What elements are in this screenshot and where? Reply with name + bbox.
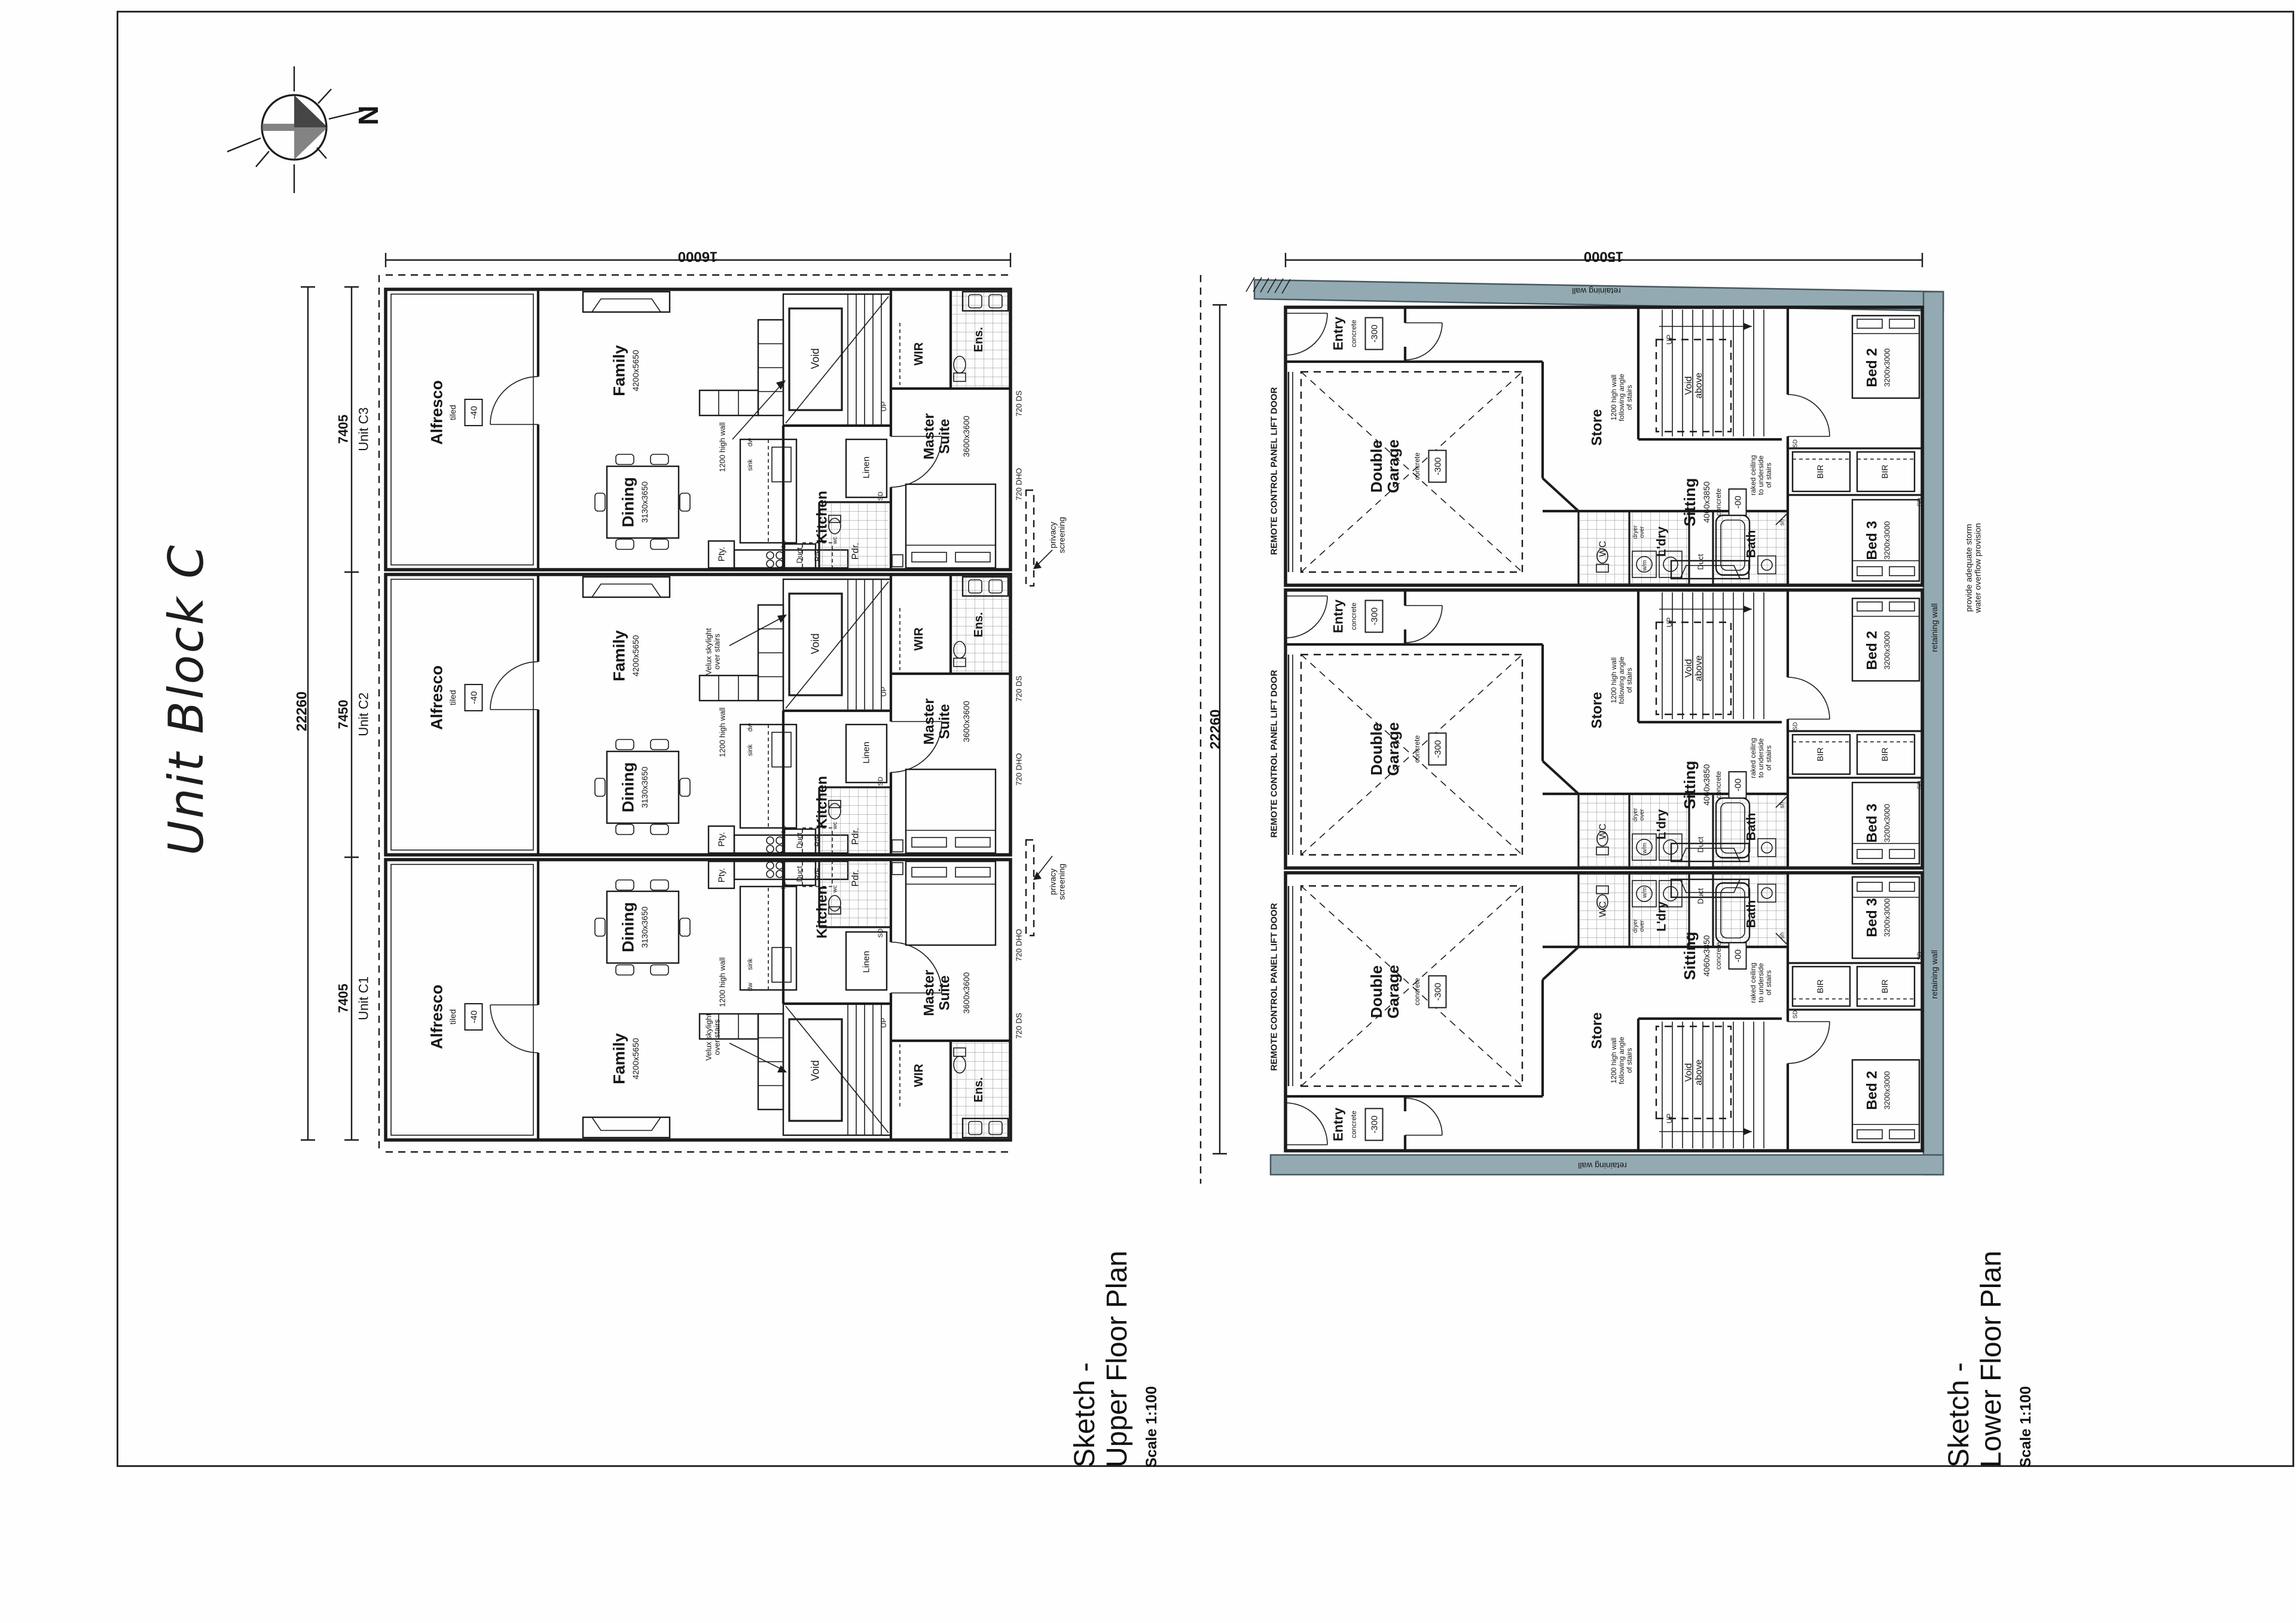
svg-text:3600x3600: 3600x3600 — [961, 701, 971, 742]
shower-label: sh — [1779, 802, 1786, 809]
svg-text:Bath: Bath — [1744, 813, 1758, 841]
svg-text:tiled: tiled — [448, 405, 457, 420]
svg-text:Bath: Bath — [1744, 900, 1758, 928]
svg-text:MasterSuite: MasterSuite — [921, 970, 952, 1016]
svg-text:-40: -40 — [469, 1010, 479, 1023]
svg-text:720 DHO: 720 DHO — [1015, 929, 1024, 961]
master-suite-size: 3600x3600 — [961, 701, 971, 742]
dim-overall-depth: 22260 — [294, 692, 310, 732]
void-above-label: Voidabove — [1684, 1059, 1704, 1086]
duct-label: Duct — [1696, 888, 1705, 904]
linen-label: Linen — [861, 742, 871, 764]
svg-text:Store: Store — [1589, 409, 1605, 445]
velux-note-c1: Velux skylightover stairs — [704, 1013, 722, 1060]
bed2-size: 3200x3000 — [1883, 631, 1892, 670]
dim-c2-depth: 7450 — [336, 700, 351, 729]
svg-text:3200x3000: 3200x3000 — [1883, 1071, 1892, 1109]
svg-text:DoubleGarage: DoubleGarage — [1367, 439, 1402, 493]
void-label: Void — [809, 348, 821, 369]
entry-level: -300 — [1366, 1108, 1383, 1140]
powder-label: Pdr. — [851, 870, 861, 887]
hotplate-label: hp — [780, 882, 787, 889]
block-title: Unit Block C — [158, 487, 218, 912]
sitting-label: Sitting — [1681, 932, 1699, 980]
svg-text:7405: 7405 — [336, 415, 351, 444]
svg-text:provide adequate stormwater ov: provide adequate stormwater overflow pro… — [1964, 523, 1982, 613]
washing-machine-label: w/m — [1642, 843, 1648, 854]
svg-text:UP: UP — [880, 1018, 888, 1028]
svg-text:15000: 15000 — [1584, 249, 1624, 265]
svg-text:7450: 7450 — [336, 700, 351, 729]
powder-label: Pdr. — [851, 543, 861, 560]
svg-text:UP: UP — [880, 687, 888, 697]
family-label: Family — [610, 345, 628, 396]
svg-text:-300: -300 — [1433, 740, 1443, 758]
svg-text:raked ceilingto undersideof st: raked ceilingto undersideof stairs — [1749, 962, 1773, 1002]
svg-text:Pty.: Pty. — [716, 832, 726, 847]
entry-finish: concrete — [1349, 1111, 1358, 1138]
dim-overall-width: 16000 — [678, 249, 718, 265]
dining-size: 3130x3650 — [640, 766, 649, 808]
svg-text:wc: wc — [832, 885, 839, 893]
lower-plan-title-line2: Lower Floor Plan — [1976, 1157, 2008, 1468]
laundry-label: L'dry — [1654, 526, 1668, 557]
svg-text:dw: dw — [747, 983, 754, 991]
svg-text:concrete: concrete — [1714, 488, 1723, 516]
svg-text:-00: -00 — [1733, 949, 1743, 962]
svg-text:4200x5650: 4200x5650 — [631, 350, 640, 392]
svg-text:Pdr.: Pdr. — [851, 543, 861, 560]
dim-c2-name: Unit C2 — [356, 692, 371, 736]
svg-text:concrete: concrete — [1714, 771, 1723, 799]
duct-label: Duct — [1696, 836, 1705, 852]
kitchen-label: Kitchen — [814, 776, 830, 829]
svg-text:dryerover: dryerover — [1632, 808, 1645, 821]
store-label: Store — [1589, 692, 1605, 728]
drawing-sheet: N Unit Block C — [0, 0, 2296, 1623]
svg-text:Kitchen: Kitchen — [814, 886, 830, 939]
velux-note-c2: Velux skylightover stairs — [704, 628, 722, 675]
svg-text:dw: dw — [747, 438, 754, 447]
svg-text:dryerover: dryerover — [1632, 919, 1645, 933]
svg-text:Alfresco: Alfresco — [428, 380, 445, 445]
svg-text:4060x3850: 4060x3850 — [1702, 481, 1711, 523]
up-label: UP — [1665, 335, 1674, 345]
svg-text:hp: hp — [780, 882, 787, 889]
sitting-size: 4060x3850 — [1702, 481, 1711, 523]
svg-text:Void: Void — [809, 348, 821, 369]
svg-text:Alfresco: Alfresco — [428, 985, 445, 1049]
svg-text:Bed 3: Bed 3 — [1864, 898, 1880, 937]
svg-text:Ens.: Ens. — [972, 1077, 985, 1102]
svg-text:tiled: tiled — [448, 1009, 457, 1025]
retaining-wall-top: retaining wall — [1572, 286, 1621, 296]
garage-level: -300 — [1429, 733, 1446, 765]
svg-text:Void: Void — [809, 633, 821, 654]
svg-text:BIR: BIR — [1815, 747, 1825, 761]
high-wall-note: 1200 high wall — [718, 422, 727, 472]
svg-text:concrete: concrete — [1413, 453, 1421, 480]
lower-dimensions — [1213, 253, 1922, 1154]
svg-text:SD: SD — [877, 491, 884, 500]
retaining-wall-bottom: retaining wall — [1578, 1161, 1627, 1170]
svg-text:Linen: Linen — [861, 951, 871, 973]
family-size: 4200x5650 — [631, 350, 640, 392]
window-ds-label: 720 DS — [1015, 676, 1024, 702]
svg-text:retaining wall: retaining wall — [1578, 1161, 1627, 1170]
smoke-detector-2: SD — [1917, 498, 1923, 506]
sitting-level: -00 — [1729, 772, 1747, 798]
svg-text:3130x3650: 3130x3650 — [640, 481, 649, 523]
wir-label: WIR — [912, 627, 926, 650]
raked-ceiling-note: raked ceilingto undersideof stairs — [1749, 962, 1773, 1002]
dining-size: 3130x3650 — [640, 481, 649, 523]
svg-text:720 DS: 720 DS — [1015, 1013, 1024, 1039]
up-label: UP — [1665, 1114, 1674, 1124]
svg-text:BIR: BIR — [1880, 464, 1889, 478]
svg-text:Bed 2: Bed 2 — [1864, 1071, 1880, 1109]
shower-label: sh — [1779, 519, 1786, 526]
sitting-finish: concrete — [1714, 488, 1723, 516]
svg-text:concrete: concrete — [1349, 603, 1358, 630]
svg-text:L'dry: L'dry — [1654, 526, 1668, 557]
bir2-label: BIR — [1880, 464, 1889, 478]
svg-text:hp: hp — [780, 826, 787, 833]
svg-text:16000: 16000 — [678, 249, 718, 265]
svg-text:UP: UP — [880, 402, 888, 412]
fridge-label: R/F — [813, 834, 822, 846]
void-label: Void — [809, 633, 821, 654]
bath-label: Bath — [1744, 530, 1758, 558]
svg-text:1200 high wall: 1200 high wall — [718, 707, 727, 757]
laundry-label: L'dry — [1654, 809, 1668, 839]
ensuite-label: Ens. — [972, 1077, 985, 1102]
svg-text:retaining wall: retaining wall — [1929, 603, 1939, 652]
bed2-label: Bed 2 — [1864, 348, 1880, 387]
sink-label: sink — [747, 958, 754, 970]
svg-text:concrete: concrete — [1413, 978, 1421, 1005]
wc-label: WC — [1598, 824, 1608, 840]
svg-text:Voidabove: Voidabove — [1684, 655, 1704, 681]
bir1-label: BIR — [1815, 464, 1825, 478]
svg-text:SD: SD — [1917, 781, 1923, 789]
master-suite-label: MasterSuite — [921, 413, 952, 459]
smoke-detector-2: SD — [1917, 781, 1923, 789]
privacy-screen-note-2: privacyscreening — [1048, 864, 1066, 900]
svg-text:Unit C3: Unit C3 — [356, 407, 371, 451]
svg-text:wc: wc — [832, 537, 839, 545]
svg-text:720 DHO: 720 DHO — [1015, 753, 1024, 785]
svg-text:BIR: BIR — [1880, 747, 1889, 761]
high-wall-note: 1200 high wall — [718, 707, 727, 757]
svg-text:Unit C2: Unit C2 — [356, 692, 371, 736]
kitchen-label: Kitchen — [814, 886, 830, 939]
upper-dimensions — [301, 253, 1010, 1140]
svg-text:Family: Family — [610, 630, 628, 681]
svg-text:concrete: concrete — [1714, 942, 1723, 970]
sitting-finish: concrete — [1714, 942, 1723, 970]
hotplate-label: hp — [780, 540, 787, 548]
svg-text:Sitting: Sitting — [1681, 761, 1699, 809]
ensuite-label: Ens. — [972, 612, 985, 637]
family-label: Family — [610, 1033, 628, 1084]
upper-plan-titleblock: Sketch - Upper Floor Plan Scale 1:100 — [1069, 1157, 1177, 1468]
smoke-detector-label: SD — [877, 491, 884, 500]
dryer-note: dryerover — [1632, 525, 1645, 539]
svg-text:R/F: R/F — [813, 549, 822, 561]
svg-text:SD: SD — [1793, 439, 1799, 448]
svg-text:DoubleGarage: DoubleGarage — [1367, 965, 1402, 1019]
svg-text:-00: -00 — [1733, 778, 1743, 791]
family-size: 4200x5650 — [631, 1038, 640, 1080]
entry-label: Entry — [1331, 316, 1346, 350]
dim-c1-depth: 7405 — [336, 984, 351, 1013]
dim-overall-width: 15000 — [1584, 249, 1624, 265]
lower-floor-plan: EntryEntryEntryconcreteconcreteconcrete-… — [1184, 233, 2117, 1214]
store-label: Store — [1589, 1012, 1605, 1049]
svg-text:tiled: tiled — [448, 690, 457, 705]
svg-text:Kitchen: Kitchen — [814, 491, 830, 543]
sink-label: sink — [747, 744, 754, 756]
hotplate-label: hp — [780, 826, 787, 833]
garage-level: -300 — [1429, 976, 1446, 1007]
svg-text:Velux skylightover stairs: Velux skylightover stairs — [704, 1013, 722, 1060]
svg-text:sink: sink — [747, 459, 754, 471]
raked-ceiling-note: raked ceilingto undersideof stairs — [1749, 738, 1773, 778]
svg-text:sink: sink — [747, 744, 754, 756]
wc-label: WC — [1598, 541, 1608, 557]
alfresco-level: -40 — [465, 684, 483, 711]
svg-text:SD: SD — [1917, 498, 1923, 506]
svg-text:Duct: Duct — [795, 832, 804, 848]
svg-text:3600x3600: 3600x3600 — [961, 972, 971, 1014]
up-label: UP — [880, 1018, 888, 1028]
entry-label: Entry — [1331, 1107, 1346, 1141]
svg-text:BIR: BIR — [1815, 464, 1825, 478]
entry-level: -300 — [1366, 600, 1383, 632]
fridge-label: R/F — [813, 549, 822, 561]
svg-text:concrete: concrete — [1349, 320, 1358, 347]
privacy-screen-1 — [1026, 490, 1034, 586]
svg-text:Voidabove: Voidabove — [1684, 1059, 1704, 1086]
duct-label: Duct — [795, 832, 804, 848]
svg-text:3200x3000: 3200x3000 — [1883, 349, 1892, 387]
alfresco-finish: tiled — [448, 405, 457, 420]
svg-text:-300: -300 — [1369, 1115, 1379, 1133]
svg-text:1200 high wall: 1200 high wall — [718, 422, 727, 472]
sitting-size: 4060x3850 — [1702, 764, 1711, 806]
svg-text:wc: wc — [832, 822, 839, 830]
svg-text:Duct: Duct — [1696, 554, 1705, 570]
svg-text:sh: sh — [1779, 802, 1786, 809]
window-dho-label: 720 DHO — [1015, 468, 1024, 500]
lower-plan-scale: Scale 1:100 — [2017, 1157, 2035, 1468]
svg-text:Ens.: Ens. — [972, 612, 985, 637]
svg-text:dw: dw — [747, 723, 754, 732]
entry-finish: concrete — [1349, 603, 1358, 630]
svg-text:SD: SD — [1793, 1010, 1799, 1019]
privacy-screen-note-1: privacyscreening — [1048, 517, 1066, 554]
svg-text:720 DS: 720 DS — [1015, 390, 1024, 417]
bed2-label: Bed 2 — [1864, 1071, 1880, 1109]
garage-label: DoubleGarage — [1367, 439, 1402, 493]
svg-text:MasterSuite: MasterSuite — [921, 413, 952, 459]
svg-text:L'dry: L'dry — [1654, 901, 1668, 931]
svg-text:BIR: BIR — [1815, 979, 1825, 993]
svg-text:Entry: Entry — [1331, 599, 1346, 633]
svg-text:Bed 2: Bed 2 — [1864, 631, 1880, 670]
garage-door-note: REMOTE CONTROL PANEL LIFT DOOR — [1269, 387, 1279, 555]
lower-building — [1201, 275, 1943, 1184]
svg-text:Family: Family — [610, 345, 628, 396]
bed2-label: Bed 2 — [1864, 631, 1880, 670]
window-dho-label: 720 DHO — [1015, 753, 1024, 785]
svg-text:Dining: Dining — [619, 762, 637, 812]
master-suite-size: 3600x3600 — [961, 972, 971, 1014]
svg-text:4060x3850: 4060x3850 — [1702, 935, 1711, 977]
svg-text:R/F: R/F — [813, 834, 822, 846]
svg-text:DoubleGarage: DoubleGarage — [1367, 722, 1402, 776]
high-wall-note: 1200 high wall — [718, 957, 727, 1007]
dishwasher-label: dw — [747, 723, 754, 732]
washing-machine-label: w/m — [1642, 560, 1648, 571]
dryer-note: dryerover — [1632, 919, 1645, 933]
bed2-size: 3200x3000 — [1883, 349, 1892, 387]
svg-text:SD: SD — [877, 777, 884, 785]
svg-text:Linen: Linen — [861, 742, 871, 764]
svg-text:-300: -300 — [1369, 607, 1379, 625]
svg-text:-300: -300 — [1433, 457, 1443, 475]
sitting-size: 4060x3850 — [1702, 935, 1711, 977]
sitting-label: Sitting — [1681, 478, 1699, 527]
smoke-detector-1: SD — [1793, 439, 1799, 448]
svg-text:1200 high wallfollowing angleo: 1200 high wallfollowing angleof stairs — [1610, 1037, 1634, 1084]
wc-label: wc — [832, 537, 839, 545]
svg-text:sh: sh — [1779, 519, 1786, 526]
svg-text:Store: Store — [1589, 1012, 1605, 1049]
svg-text:Store: Store — [1589, 692, 1605, 728]
storm-water-note: provide adequate stormwater overflow pro… — [1964, 523, 1982, 613]
pantry-label: Pty. — [716, 832, 726, 847]
smoke-detector-1: SD — [1793, 1010, 1799, 1019]
duct-label: Duct — [795, 866, 804, 882]
garage-label: DoubleGarage — [1367, 965, 1402, 1019]
svg-text:L'dry: L'dry — [1654, 809, 1668, 839]
bed2-size: 3200x3000 — [1883, 1071, 1892, 1109]
svg-text:retaining wall: retaining wall — [1929, 950, 1939, 999]
alfresco-finish: tiled — [448, 1009, 457, 1025]
svg-text:Ens.: Ens. — [972, 327, 985, 352]
svg-text:Entry: Entry — [1331, 1107, 1346, 1141]
svg-text:4060x3850: 4060x3850 — [1702, 764, 1711, 806]
lower-plan-title-line1: Sketch - — [1943, 1157, 1976, 1468]
raked-ceiling-note: raked ceilingto undersideof stairs — [1749, 455, 1773, 495]
master-suite-label: MasterSuite — [921, 970, 952, 1016]
svg-text:22260: 22260 — [294, 692, 310, 732]
svg-text:3200x3000: 3200x3000 — [1883, 804, 1892, 842]
dining-label: Dining — [619, 902, 637, 952]
svg-text:SD: SD — [1917, 952, 1923, 960]
svg-text:1200 high wall: 1200 high wall — [718, 957, 727, 1007]
garage-door-note: REMOTE CONTROL PANEL LIFT DOOR — [1269, 670, 1279, 838]
svg-text:UP: UP — [1665, 1114, 1674, 1124]
svg-text:WC: WC — [1598, 541, 1608, 557]
alfresco-finish: tiled — [448, 690, 457, 705]
svg-text:REMOTE CONTROL PANEL LIFT DOOR: REMOTE CONTROL PANEL LIFT DOOR — [1269, 387, 1279, 555]
garage-finish: concrete — [1413, 978, 1421, 1005]
svg-text:privacyscreening: privacyscreening — [1048, 864, 1066, 900]
bed3-label: Bed 3 — [1864, 898, 1880, 937]
svg-text:Bed 3: Bed 3 — [1864, 803, 1880, 842]
upper-plan-title-line1: Sketch - — [1069, 1157, 1101, 1468]
upper-floor-plan: AlfrescoAlfrescoAlfrescotiledtiledtiled-… — [257, 233, 1130, 1190]
alfresco-level: -40 — [465, 399, 483, 426]
linen-label: Linen — [861, 457, 871, 479]
svg-text:hp: hp — [780, 540, 787, 548]
wir-label: WIR — [912, 342, 926, 365]
svg-text:SD: SD — [1793, 722, 1799, 730]
master-suite-label: MasterSuite — [921, 698, 952, 744]
svg-text:Duct: Duct — [1696, 836, 1705, 852]
svg-text:1200 high wallfollowing angleo: 1200 high wallfollowing angleof stairs — [1610, 374, 1634, 421]
svg-text:MasterSuite: MasterSuite — [921, 698, 952, 744]
svg-text:sink: sink — [747, 958, 754, 970]
family-size: 4200x5650 — [631, 635, 640, 677]
svg-text:Duct: Duct — [1696, 888, 1705, 904]
garage-finish: concrete — [1413, 735, 1421, 763]
dryer-note: dryerover — [1632, 808, 1645, 821]
svg-text:4200x5650: 4200x5650 — [631, 1038, 640, 1080]
svg-text:Dining: Dining — [619, 902, 637, 952]
pantry-label: Pty. — [716, 547, 726, 562]
alfresco-label: Alfresco — [428, 380, 445, 445]
svg-text:REMOTE CONTROL PANEL LIFT DOOR: REMOTE CONTROL PANEL LIFT DOOR — [1269, 903, 1279, 1071]
svg-text:R/F: R/F — [813, 867, 822, 880]
svg-text:Sitting: Sitting — [1681, 478, 1699, 527]
svg-text:Pdr.: Pdr. — [851, 870, 861, 887]
garage-label: DoubleGarage — [1367, 722, 1402, 776]
svg-text:-40: -40 — [469, 406, 479, 419]
dim-c3-name: Unit C3 — [356, 407, 371, 451]
bath-label: Bath — [1744, 900, 1758, 928]
svg-text:3200x3000: 3200x3000 — [1883, 898, 1892, 937]
svg-text:w/m: w/m — [1642, 887, 1648, 898]
retaining-wall-right-1: retaining wall — [1929, 603, 1939, 652]
svg-text:WIR: WIR — [912, 627, 926, 650]
alfresco-label: Alfresco — [428, 985, 445, 1049]
svg-text:UP: UP — [1665, 618, 1674, 628]
svg-text:retaining wall: retaining wall — [1572, 286, 1621, 296]
bir2-label: BIR — [1880, 979, 1889, 993]
svg-text:Pty.: Pty. — [716, 547, 726, 562]
smoke-detector-label: SD — [877, 777, 884, 785]
svg-text:3130x3650: 3130x3650 — [640, 906, 649, 948]
svg-text:UP: UP — [1665, 335, 1674, 345]
svg-text:Bath: Bath — [1744, 530, 1758, 558]
sink-label: sink — [747, 459, 754, 471]
svg-text:BIR: BIR — [1880, 979, 1889, 993]
svg-text:WIR: WIR — [912, 1063, 926, 1087]
smoke-detector-label: SD — [877, 928, 884, 937]
ensuite-label: Ens. — [972, 327, 985, 352]
svg-text:-00: -00 — [1733, 496, 1743, 509]
smoke-detector-1: SD — [1793, 722, 1799, 730]
duct-label: Duct — [1696, 554, 1705, 570]
void-label: Void — [809, 1060, 821, 1081]
svg-text:3130x3650: 3130x3650 — [640, 766, 649, 808]
bath-label: Bath — [1744, 813, 1758, 841]
svg-text:Pty.: Pty. — [716, 868, 726, 883]
